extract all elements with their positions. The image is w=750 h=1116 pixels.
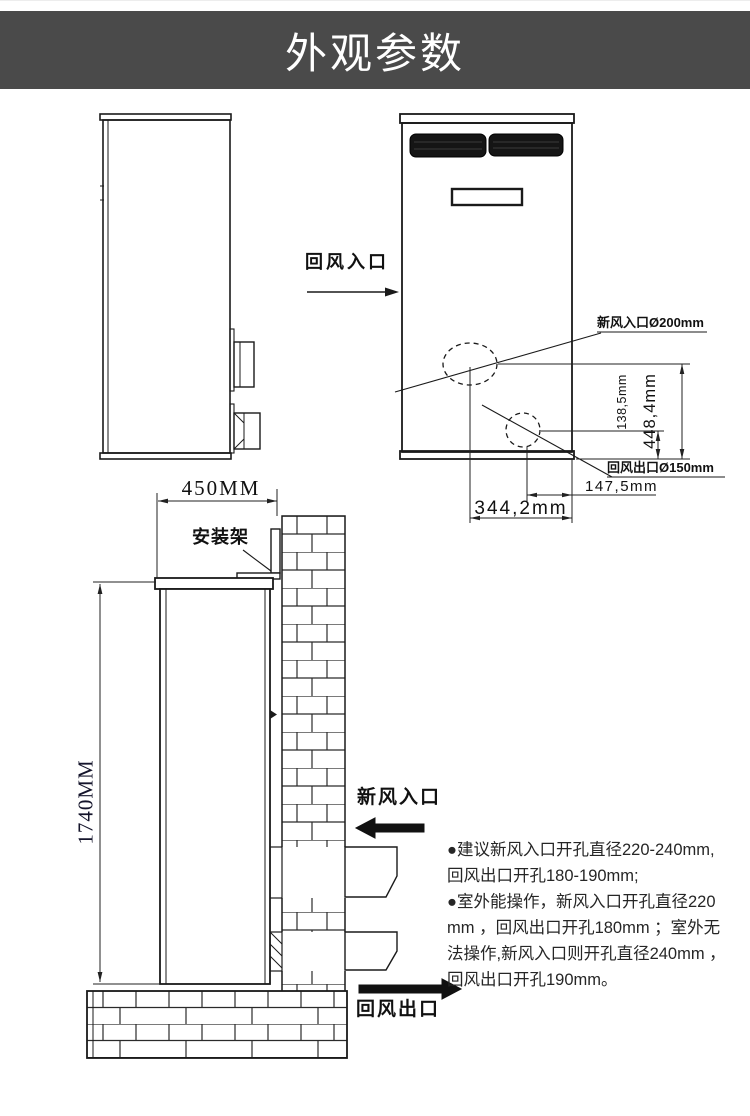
label-return-air-outlet: 回风出口 — [356, 1000, 440, 1019]
note-line: mm ，回风出口开孔180mm ；室外无 — [447, 915, 747, 941]
note-line: ●建议新风入口开孔直径220-240mm, — [447, 837, 747, 863]
dim-344-2mm: 344,2mm — [474, 499, 567, 518]
label-mounting-bracket: 安装架 — [192, 528, 249, 546]
label-return-air-inlet: 回风入口 — [305, 253, 389, 271]
spec-sheet: 外观参数 — [0, 0, 750, 1116]
label-fresh-air-hole-diameter: 新风入口Ø200mm — [597, 316, 704, 329]
note-line: 回风出口开孔190mm。 — [447, 967, 747, 993]
note-line: 回风出口开孔180-190mm; — [447, 863, 747, 889]
drilling-notes: ●建议新风入口开孔直径220-240mm, 回风出口开孔180-190mm; ●… — [447, 837, 747, 993]
label-return-air-hole-diameter: 回风出口Ø150mm — [607, 461, 714, 474]
dim-1740mm: 1740MM — [76, 759, 97, 844]
dim-450mm: 450MM — [182, 478, 261, 499]
note-line: 法操作,新风入口则开孔直径240mm ， — [447, 941, 747, 967]
dim-147-5mm: 147,5mm — [585, 479, 658, 494]
note-line: ●室外能操作，新风入口开孔直径220 — [447, 889, 747, 915]
dim-448-4mm: 448,4mm — [642, 373, 659, 449]
label-fresh-air-inlet: 新风入口 — [357, 788, 441, 807]
dim-138-5mm: 138,5mm — [616, 374, 629, 430]
